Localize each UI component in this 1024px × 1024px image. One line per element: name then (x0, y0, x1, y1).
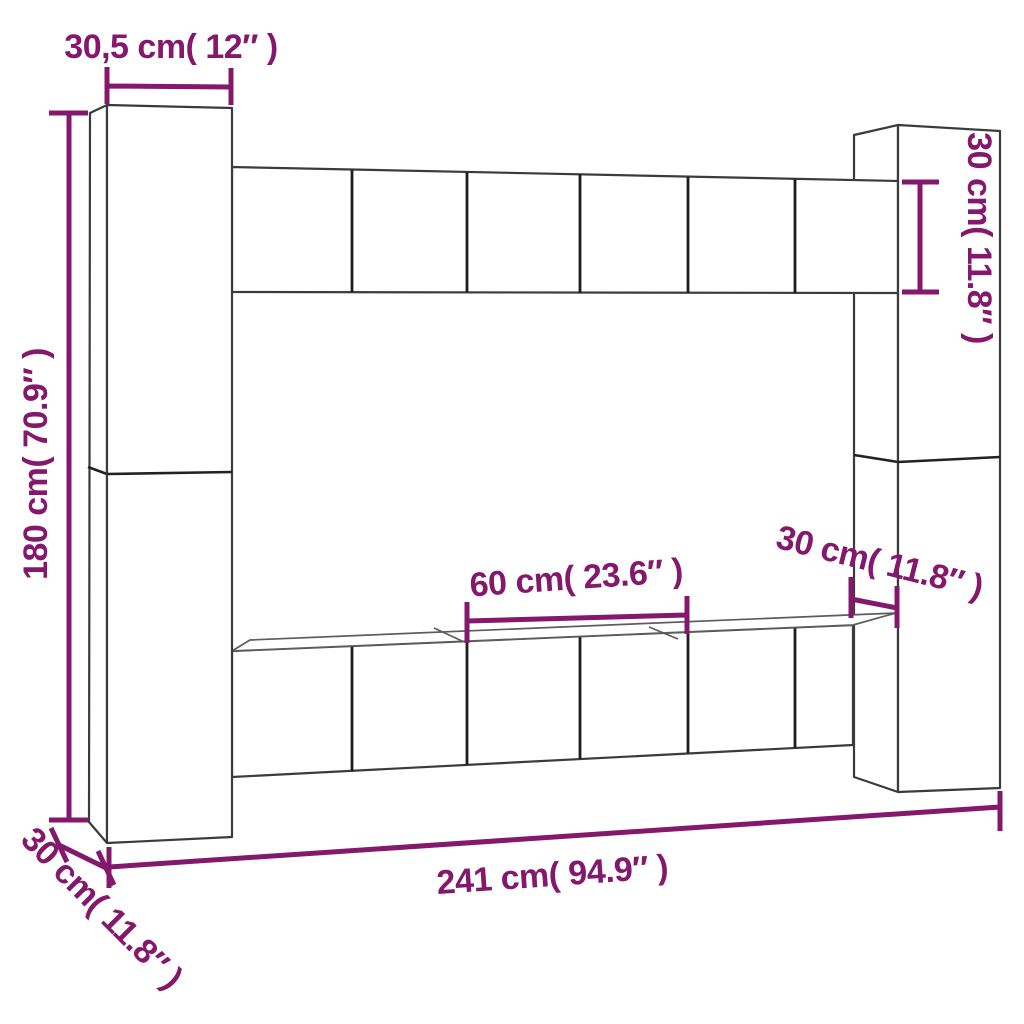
dimension-label-shelf-width: 60 cm( 23.6″ ) (468, 552, 684, 605)
dimension-label-top-width: 30,5 cm( 12″ ) (64, 28, 277, 66)
dimension-total-width: 241 cm( 94.9″ ) (109, 791, 1000, 902)
diagram-canvas: 30,5 cm( 12″ ) 180 cm( 70.9″ ) 30 cm( 11… (0, 0, 1024, 1024)
dimension-label-left-height: 180 cm( 70.9″ ) (17, 348, 55, 580)
dimension-label-right-unit-height: 30 cm( 11.8″ ) (960, 132, 998, 344)
tv-wall-unit-drawing (88, 105, 1000, 843)
dimension-top-width: 30,5 cm( 12″ ) (64, 28, 277, 105)
dimension-label-side-depth: 30 cm( 11.8″ ) (14, 820, 190, 996)
dimension-side-depth: 30 cm( 11.8″ ) (14, 820, 190, 996)
top-row-front (232, 167, 898, 293)
dimension-left-height: 180 cm( 70.9″ ) (17, 113, 88, 820)
furniture-dimension-diagram: 30,5 cm( 12″ ) 180 cm( 70.9″ ) 30 cm( 11… (0, 0, 1024, 1024)
dimension-label-total-width: 241 cm( 94.9″ ) (435, 848, 669, 902)
dimension-line (107, 67, 231, 105)
